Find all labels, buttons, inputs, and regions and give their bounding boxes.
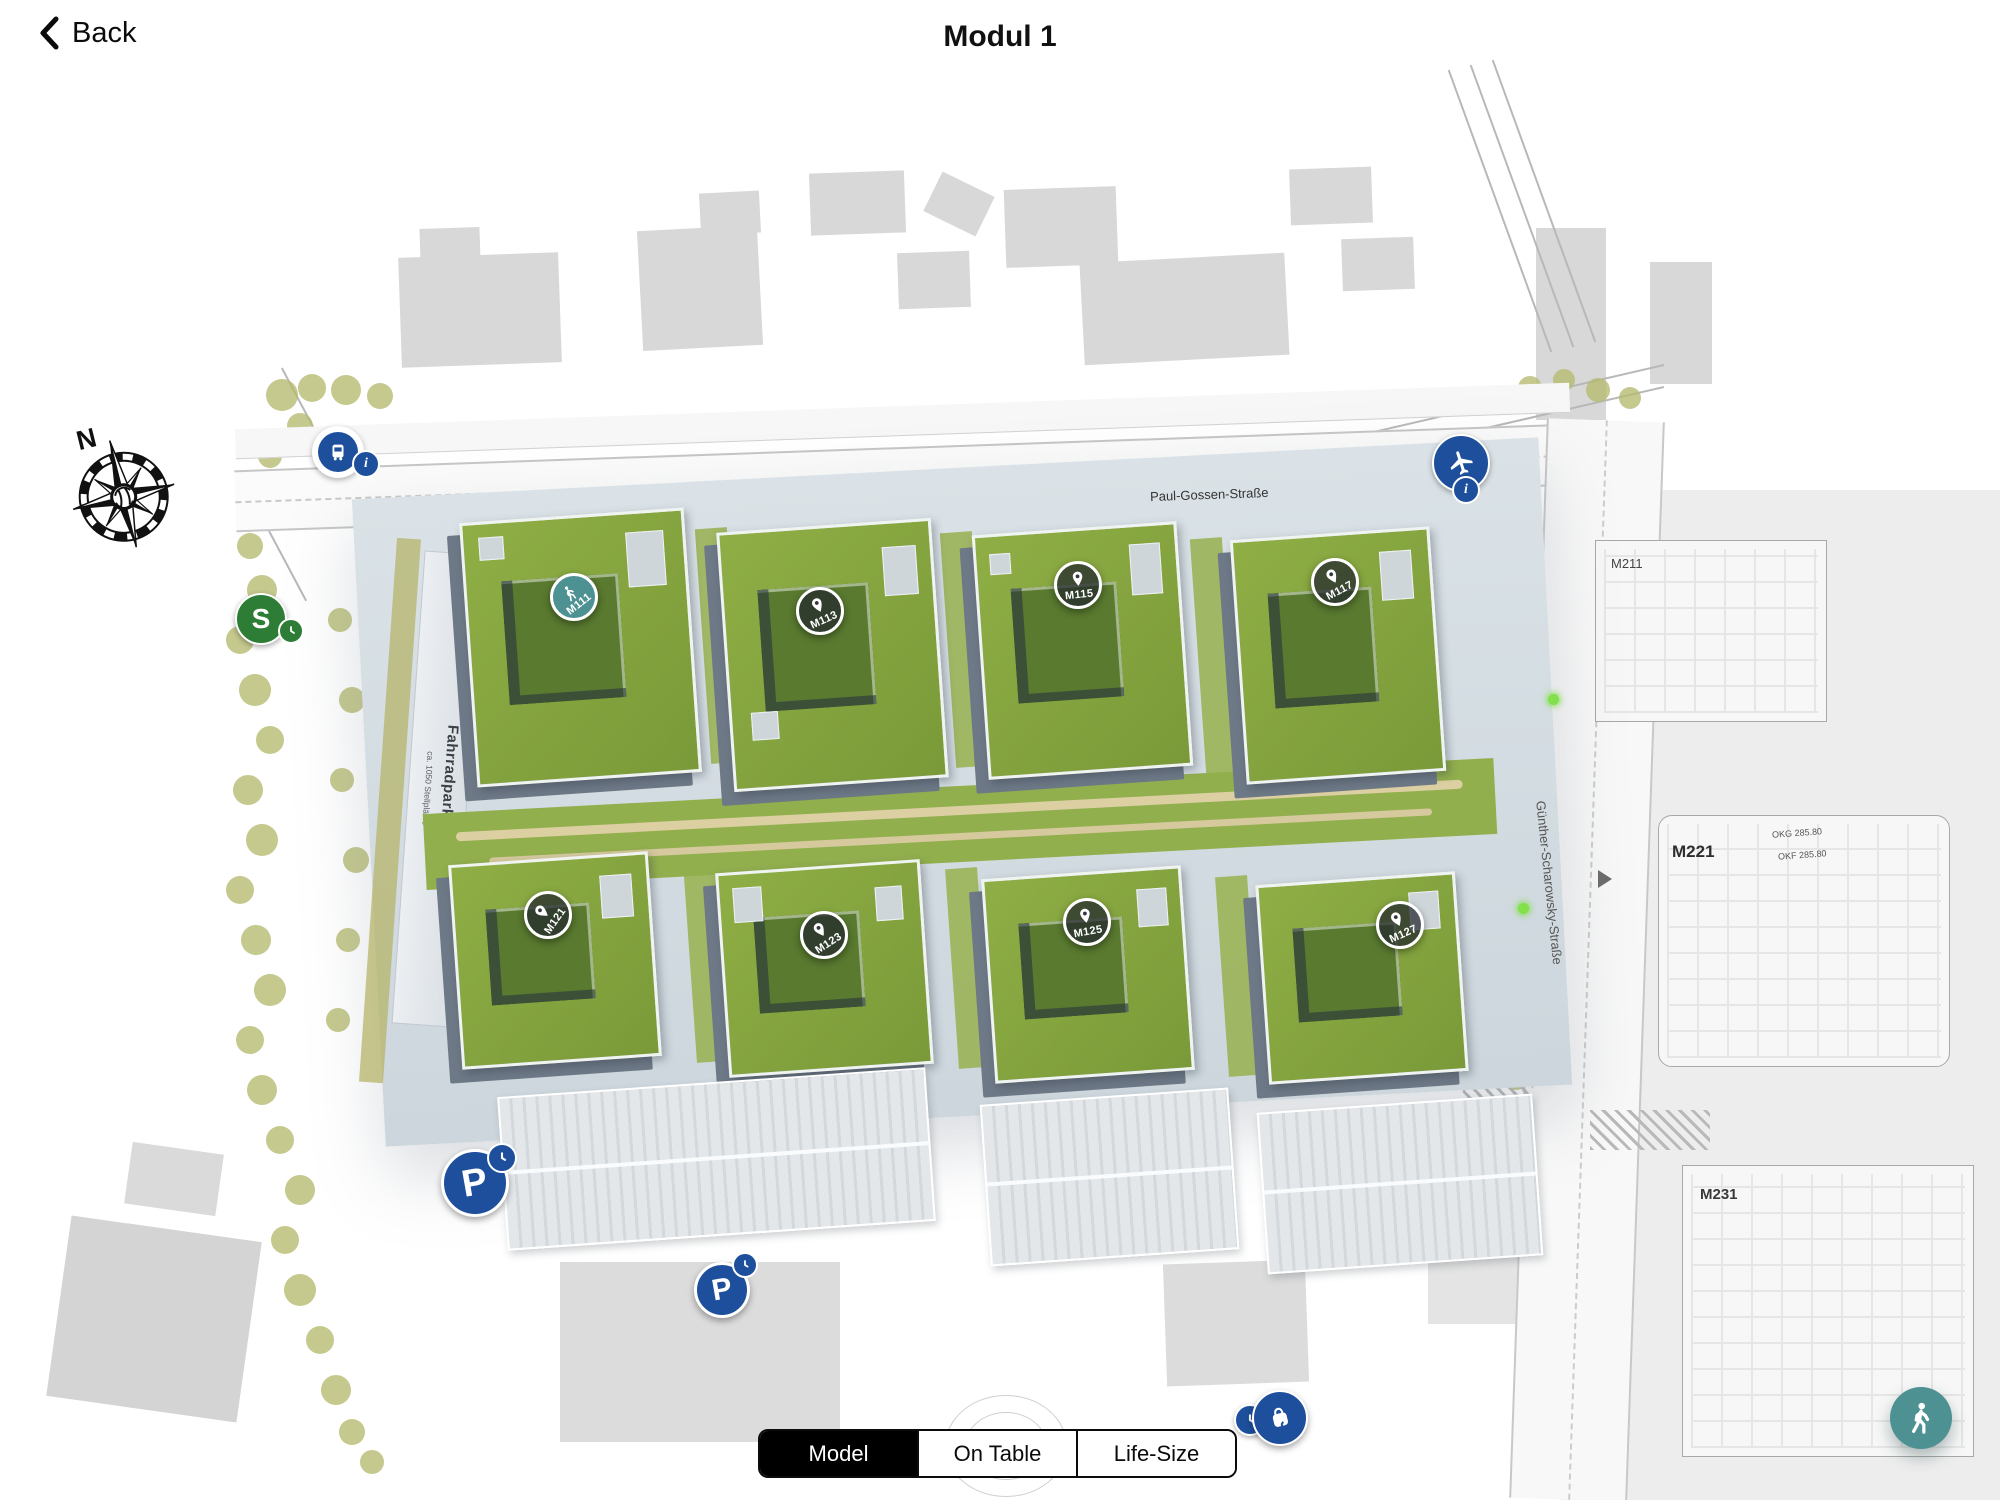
building-marker-m123[interactable]: M123	[800, 911, 848, 959]
building-block-m127	[1255, 871, 1468, 1084]
building-footprint	[637, 225, 763, 351]
parking-clock-badge[interactable]	[487, 1143, 517, 1173]
tree	[241, 925, 271, 955]
building-footprint	[124, 1142, 224, 1216]
tab-life-size[interactable]: Life-Size	[1076, 1431, 1235, 1476]
tree	[285, 1175, 315, 1205]
direction-triangle	[1598, 870, 1612, 888]
tree	[330, 768, 354, 792]
info-label: i	[364, 456, 368, 472]
view-mode-switcher: Model On Table Life-Size	[758, 1429, 1237, 1478]
tree	[266, 379, 298, 411]
sbahn-label: S	[252, 603, 271, 635]
signal-dot	[1518, 903, 1529, 914]
pin-icon	[1067, 569, 1088, 590]
tree	[298, 374, 326, 402]
industrial-hall	[980, 1088, 1240, 1267]
building-marker-m111[interactable]: M111	[550, 573, 598, 621]
info-label: i	[1464, 482, 1468, 498]
tree	[328, 608, 352, 632]
tree	[246, 824, 278, 856]
tree	[256, 726, 284, 754]
clock-icon	[739, 1259, 751, 1271]
tab-model[interactable]: Model	[760, 1431, 917, 1476]
parking-label: P	[459, 1160, 491, 1207]
building-footprint	[419, 227, 480, 263]
tree	[360, 1450, 384, 1474]
tab-on-table[interactable]: On Table	[917, 1431, 1076, 1476]
signal-dot	[1548, 694, 1559, 705]
tree	[367, 383, 393, 409]
tree	[226, 876, 254, 904]
tree	[271, 1226, 299, 1254]
building-footprint	[398, 252, 562, 368]
tree	[239, 674, 271, 706]
hatched-area	[1590, 1110, 1710, 1150]
tree	[1586, 378, 1610, 402]
tree	[247, 1075, 277, 1105]
tree	[306, 1326, 334, 1354]
tree	[343, 847, 369, 873]
airport-info-badge[interactable]: i	[1452, 476, 1480, 504]
building-footprint	[1289, 167, 1373, 226]
building-marker-m127[interactable]: M127	[1376, 901, 1424, 949]
marker-label: M115	[1064, 587, 1094, 602]
map-line	[1448, 70, 1552, 353]
building-footprint	[809, 170, 906, 235]
building-footprint	[1341, 237, 1415, 291]
pedestrian-mode-button[interactable]	[1890, 1387, 1952, 1449]
building-footprint	[1079, 253, 1289, 366]
compass-icon	[48, 412, 196, 567]
tree	[284, 1274, 316, 1306]
tree	[331, 375, 361, 405]
map-line	[1470, 65, 1574, 348]
plan-label-m231: M231	[1700, 1186, 1738, 1203]
tree	[321, 1375, 351, 1405]
tree	[233, 775, 263, 805]
shopping-bag-icon	[1263, 1401, 1297, 1435]
plan-label-m221: M221	[1672, 842, 1715, 862]
building-marker-m125[interactable]: M125	[1063, 898, 1111, 946]
plan-label-m211: M211	[1611, 556, 1643, 571]
building-footprint	[923, 172, 994, 237]
building-footprint	[897, 251, 971, 309]
tree	[237, 533, 263, 559]
tree	[254, 974, 286, 1006]
tree	[326, 1008, 350, 1032]
page-title: Modul 1	[0, 20, 2000, 54]
building-block-m113	[716, 518, 949, 792]
building-footprint	[699, 190, 761, 235]
building-block-m115	[972, 521, 1194, 780]
building-marker-m115[interactable]: M115	[1054, 561, 1102, 609]
building-footprint	[1004, 186, 1119, 268]
building-marker-m113[interactable]: M113	[796, 587, 844, 635]
tree	[339, 1419, 365, 1445]
parking-clock-badge[interactable]	[732, 1252, 758, 1278]
site-plan-screen: Fahrradparkhaus ca. 1050 Stellplätze	[0, 0, 2000, 1500]
parking-label: P	[709, 1272, 735, 1309]
clock-icon	[285, 625, 297, 637]
compass-rose: N	[48, 412, 196, 567]
pedestrian-walk-icon	[1904, 1401, 1938, 1435]
building-marker-m117[interactable]: M117	[1311, 558, 1359, 606]
tree	[336, 928, 360, 952]
shopping-icon[interactable]	[1252, 1390, 1308, 1446]
building-footprint	[1163, 1260, 1309, 1387]
industrial-hall	[1257, 1094, 1544, 1275]
industrial-hall	[497, 1067, 936, 1251]
clock-icon	[495, 1151, 509, 1165]
building-block-m111	[459, 507, 702, 787]
sbahn-clock-badge[interactable]	[278, 618, 304, 644]
building-block-m121	[448, 851, 662, 1069]
plan-grid	[1604, 549, 1818, 713]
bus-info-badge[interactable]: i	[352, 450, 380, 478]
tree	[1619, 387, 1641, 409]
tree	[236, 1026, 264, 1054]
building-marker-m121[interactable]: M121	[524, 891, 572, 939]
building-block-m123	[715, 859, 934, 1078]
building-footprint	[46, 1216, 261, 1423]
tree	[266, 1126, 294, 1154]
